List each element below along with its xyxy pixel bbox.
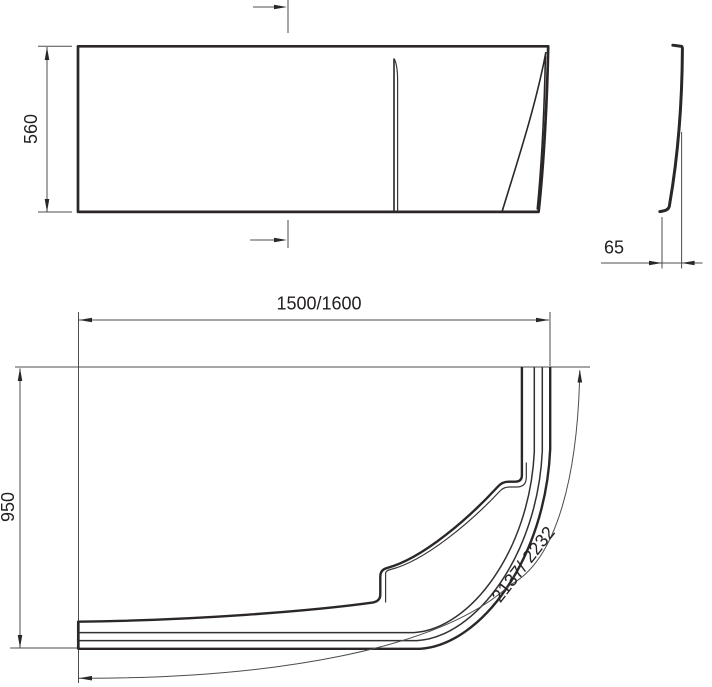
band-line-2 <box>78 367 542 641</box>
right-arrowhead <box>274 5 287 10</box>
side-profile-stroke <box>660 45 683 211</box>
technical-drawing-canvas: 560 65 1500/1600 <box>0 0 712 687</box>
down-arrowhead <box>45 199 50 212</box>
right-arrowhead <box>274 238 287 243</box>
top-position-marker <box>253 0 288 33</box>
down-arrowhead <box>18 635 23 648</box>
left-arrowhead <box>79 676 92 681</box>
plan-depth-label: 950 <box>0 492 18 522</box>
plan-width-label: 1500/1600 <box>276 294 361 314</box>
plan-arc-length-label: 2137/ 2232 <box>488 523 559 606</box>
side-thickness-label: 65 <box>604 238 624 258</box>
band-inner-edge-with-steps <box>78 367 522 622</box>
left-arrowhead <box>682 261 695 266</box>
drawing-svg: 560 65 1500/1600 <box>0 0 712 687</box>
band-line-3 <box>78 367 534 633</box>
front-height-dimension: 560 <box>21 46 72 212</box>
plan-arc-dimension: 2137/ 2232 <box>79 370 582 681</box>
front-height-label: 560 <box>21 114 41 144</box>
side-thickness-dimension: 65 <box>601 132 703 269</box>
up-arrowhead <box>578 370 583 383</box>
plan-depth-dimension: 950 <box>0 368 22 648</box>
up-arrowhead <box>45 47 50 60</box>
plan-view: 1500/1600 950 2137/ 2232 <box>0 294 590 684</box>
up-arrowhead <box>18 368 23 381</box>
front-view: 560 <box>21 0 548 248</box>
right-arrowhead <box>536 318 549 323</box>
side-profile-view: 65 <box>601 45 703 268</box>
bottom-position-marker <box>250 220 288 248</box>
left-arrowhead <box>79 318 92 323</box>
right-arrowhead <box>649 261 662 266</box>
band-outer-edge <box>78 367 550 649</box>
plan-width-dimension: 1500/1600 <box>79 294 549 323</box>
front-panel-outline <box>78 46 548 212</box>
